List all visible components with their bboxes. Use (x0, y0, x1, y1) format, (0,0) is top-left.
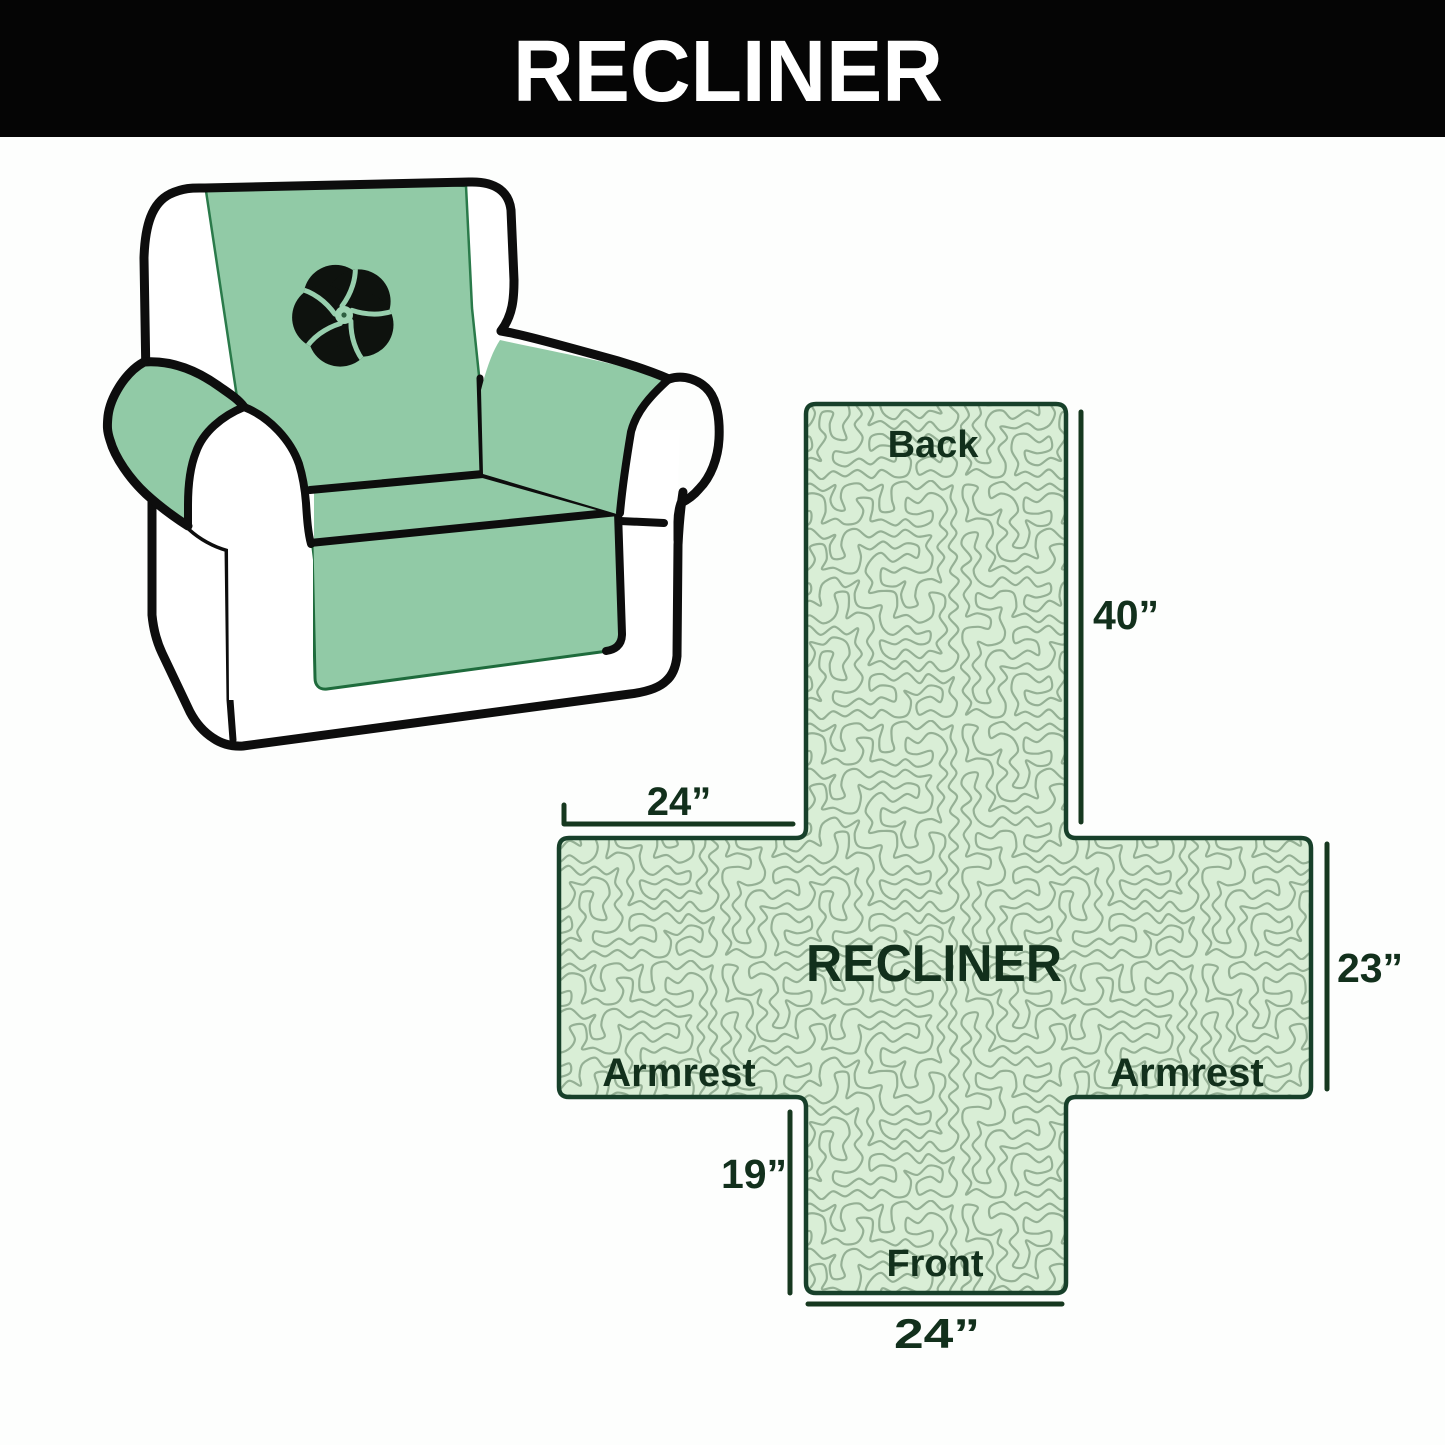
svg-text:23”: 23” (1337, 945, 1403, 991)
svg-text:19”: 19” (721, 1151, 787, 1197)
svg-text:24”: 24” (647, 780, 712, 824)
svg-text:RECLINER: RECLINER (513, 23, 943, 120)
svg-text:RECLINER: RECLINER (806, 935, 1062, 993)
svg-text:Armrest: Armrest (602, 1051, 755, 1095)
svg-text:Back: Back (888, 424, 980, 466)
svg-text:Front: Front (886, 1243, 983, 1285)
svg-text:Armrest: Armrest (1110, 1051, 1263, 1095)
svg-text:40”: 40” (1093, 592, 1159, 638)
svg-text:24”: 24” (894, 1310, 980, 1357)
